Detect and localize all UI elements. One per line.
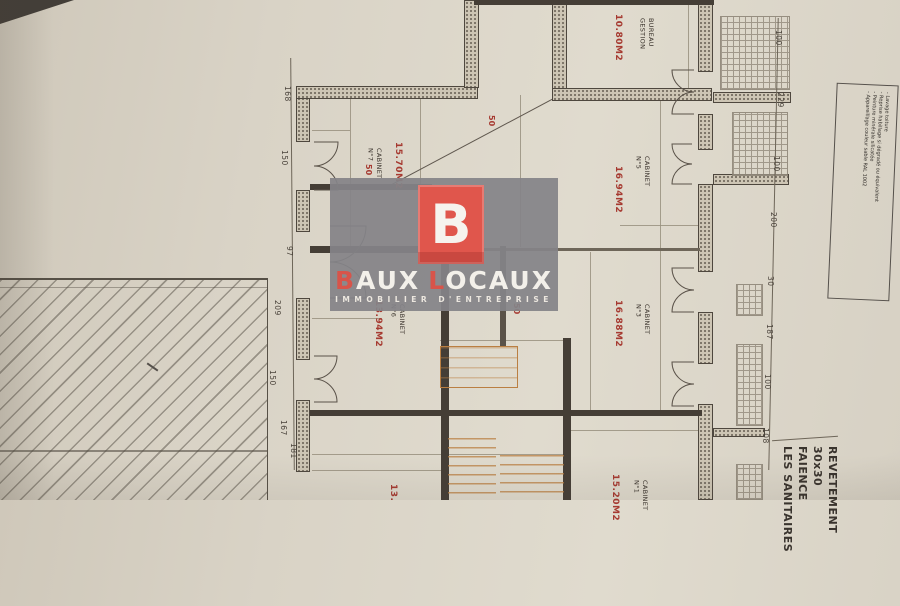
wall-segment xyxy=(296,86,478,99)
area-label-cabinet5: 16.94M2 xyxy=(613,166,623,213)
room-label-line: CABINET xyxy=(643,156,652,186)
wall-segment xyxy=(464,0,479,88)
legend-line: 30x30 xyxy=(810,446,825,606)
interior-wall xyxy=(563,338,571,500)
logo-letter: B xyxy=(430,198,471,252)
wall-segment xyxy=(713,428,765,437)
dim-left: 167 xyxy=(279,420,288,436)
brand-wordmark: BAUXLOCAUX xyxy=(330,266,558,295)
room-label-line: N°5 xyxy=(634,156,643,186)
area-label-partial: 13. xyxy=(388,484,398,501)
partition-line xyxy=(590,252,591,410)
partition-line xyxy=(420,95,421,185)
wall-segment xyxy=(552,0,567,90)
floor-plan-photo: { "watermark": { "logo_letter": "B", "br… xyxy=(0,0,900,500)
legend-revetement: REVETEMENT 30x30 FAIENCE LES SANITAIRES xyxy=(700,446,840,606)
dim-right: 100 xyxy=(774,30,783,46)
room-label-line: N°1 xyxy=(632,480,641,510)
partition-line xyxy=(660,95,661,410)
wall-segment xyxy=(296,190,310,232)
stair-treads xyxy=(500,455,564,500)
dim-right: 100 xyxy=(772,156,781,172)
room-label-line: CABINET xyxy=(375,148,384,178)
brand-letter-l: L xyxy=(428,266,445,295)
partition-line xyxy=(620,225,700,226)
annex-hatched-roof xyxy=(0,278,268,500)
annex-eave-line xyxy=(0,450,268,452)
wall-segment xyxy=(698,184,713,272)
tile-grid xyxy=(736,284,763,316)
red-dim-50: 50 xyxy=(487,115,496,126)
dim-right: 200 xyxy=(769,212,778,228)
room-label-cabinet1: CABINET N°1 xyxy=(632,480,649,510)
dim-left: 97 xyxy=(285,246,294,257)
dim-left: 150 xyxy=(268,370,277,386)
interior-wall xyxy=(474,0,714,5)
partition-line xyxy=(312,470,442,471)
notes-box: - Lavage toiture - Reprise habillage si … xyxy=(827,83,898,301)
double-door-icon xyxy=(670,266,696,314)
dim-left: 209 xyxy=(273,300,282,316)
legend-leader-line xyxy=(772,436,838,442)
area-label-bureau: 10.80M2 xyxy=(613,14,623,61)
dim-left: 168 xyxy=(283,86,292,102)
brand-tagline: IMMOBILIER D'ENTREPRISE xyxy=(330,295,558,304)
partition-line xyxy=(312,318,382,319)
logo-mark: B xyxy=(418,185,484,264)
double-door-icon xyxy=(670,360,696,408)
dim-right: 108 xyxy=(761,428,770,444)
brand-letter-b: B xyxy=(335,266,356,295)
dim-left: 181 xyxy=(289,443,298,459)
double-door-icon xyxy=(312,354,339,404)
tile-grid xyxy=(720,16,790,90)
wall-segment xyxy=(296,400,310,472)
room-label-bureau: BUREAU GESTION xyxy=(638,18,655,49)
annex-mark xyxy=(147,362,159,371)
brand-ocaux: OCAUX xyxy=(445,266,553,295)
room-label-cabinet5: CABINET N°5 xyxy=(634,156,651,186)
brand-aux: AUX xyxy=(356,266,420,295)
stair-treads xyxy=(448,438,496,500)
dimension-line-left xyxy=(290,58,295,470)
dim-right: 229 xyxy=(776,92,785,108)
legend-line: FAIENCE xyxy=(795,446,810,606)
section-cut-line xyxy=(388,90,569,187)
area-label-cabinet1: 15.20M2 xyxy=(610,474,620,521)
wall-segment xyxy=(296,298,310,360)
interior-wall xyxy=(310,410,702,416)
room-label-line: CABINET xyxy=(641,480,650,510)
photo-corner-shadow xyxy=(0,0,74,24)
room-label-line: BUREAU xyxy=(647,18,656,49)
double-door-icon xyxy=(670,68,696,116)
partition-line xyxy=(570,430,700,431)
double-door-icon xyxy=(670,142,694,186)
dim-right: 100 xyxy=(763,374,772,390)
legend-line: REVETEMENT xyxy=(825,446,840,606)
room-label-line: GESTION xyxy=(638,18,647,49)
legend-line: LES SANITAIRES xyxy=(780,446,795,606)
room-label-line: CABINET xyxy=(643,304,652,334)
partition-line xyxy=(312,130,350,131)
annex-ridge-line xyxy=(0,287,268,288)
red-dim-50: 50 xyxy=(364,164,373,175)
dim-right: 30 xyxy=(766,276,775,287)
room-label-line: N°3 xyxy=(634,304,643,334)
dim-right: 187 xyxy=(765,324,774,340)
wall-segment xyxy=(698,312,713,364)
tile-grid xyxy=(736,344,763,426)
room-label-cabinet3: CABINET N°3 xyxy=(634,304,651,334)
wall-segment xyxy=(698,114,713,150)
stair-landing xyxy=(440,346,518,388)
dim-left: 150 xyxy=(280,150,289,166)
watermark-panel: B BAUXLOCAUX IMMOBILIER D'ENTREPRISE xyxy=(330,178,558,311)
wall-segment xyxy=(698,0,713,72)
area-label-cabinet3: 16.88M2 xyxy=(613,300,623,347)
